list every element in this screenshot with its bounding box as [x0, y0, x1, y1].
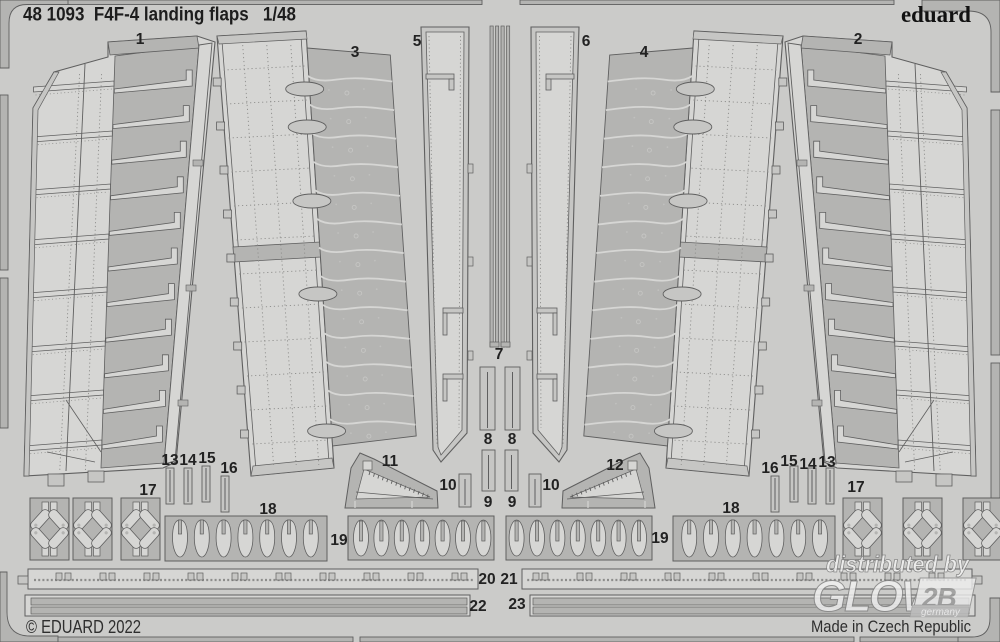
svg-text:13: 13: [818, 454, 836, 471]
svg-text:3: 3: [351, 44, 360, 61]
svg-text:16: 16: [761, 460, 779, 477]
svg-text:20: 20: [478, 571, 495, 588]
svg-text:18: 18: [722, 500, 740, 517]
svg-text:17: 17: [847, 479, 864, 496]
svg-text:17: 17: [139, 482, 156, 499]
svg-text:9: 9: [484, 494, 493, 511]
svg-text:© EDUARD 2022: © EDUARD 2022: [26, 616, 141, 637]
svg-text:7: 7: [495, 346, 504, 363]
svg-text:14: 14: [799, 456, 817, 473]
svg-text:4: 4: [640, 44, 649, 61]
svg-text:5: 5: [413, 33, 422, 50]
svg-text:14: 14: [179, 452, 197, 469]
svg-text:12: 12: [606, 457, 623, 474]
svg-text:1: 1: [136, 31, 145, 48]
svg-text:13: 13: [161, 452, 179, 469]
svg-text:8: 8: [508, 431, 517, 448]
svg-text:19: 19: [330, 532, 348, 549]
svg-text:18: 18: [259, 501, 277, 518]
svg-text:19: 19: [651, 530, 669, 547]
svg-text:2: 2: [854, 31, 863, 48]
svg-text:10: 10: [542, 477, 559, 494]
svg-text:16: 16: [220, 460, 238, 477]
svg-text:22: 22: [469, 598, 486, 615]
svg-text:15: 15: [198, 450, 216, 467]
svg-text:germany: germany: [921, 607, 961, 618]
svg-text:23: 23: [508, 596, 526, 613]
svg-text:11: 11: [382, 453, 399, 470]
svg-text:8: 8: [484, 431, 493, 448]
svg-text:15: 15: [780, 453, 798, 470]
svg-text:21: 21: [500, 571, 518, 588]
svg-text:9: 9: [508, 494, 517, 511]
svg-text:10: 10: [439, 477, 456, 494]
svg-text:6: 6: [582, 33, 591, 50]
svg-text:eduard: eduard: [901, 2, 971, 27]
svg-text:48 1093 F4F-4 landing flaps: 48 1093 F4F-4 landing flaps 1/48: [23, 5, 296, 26]
